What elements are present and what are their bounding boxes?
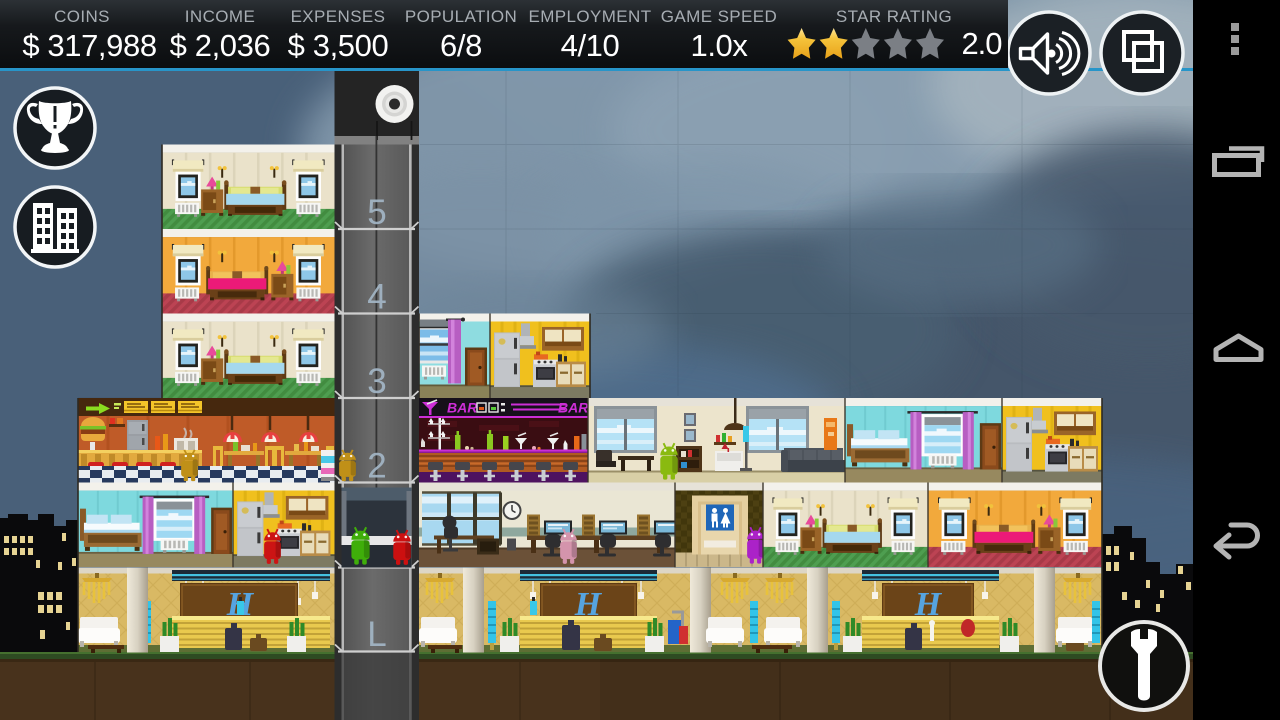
svg-text:4: 4	[367, 278, 386, 317]
svg-text:BAR: BAR	[558, 400, 589, 416]
svg-text:2: 2	[367, 447, 386, 486]
svg-text:3: 3	[367, 362, 386, 401]
svg-text:L: L	[367, 615, 386, 654]
svg-text:BAR: BAR	[447, 400, 478, 416]
svg-text:5: 5	[367, 193, 386, 232]
